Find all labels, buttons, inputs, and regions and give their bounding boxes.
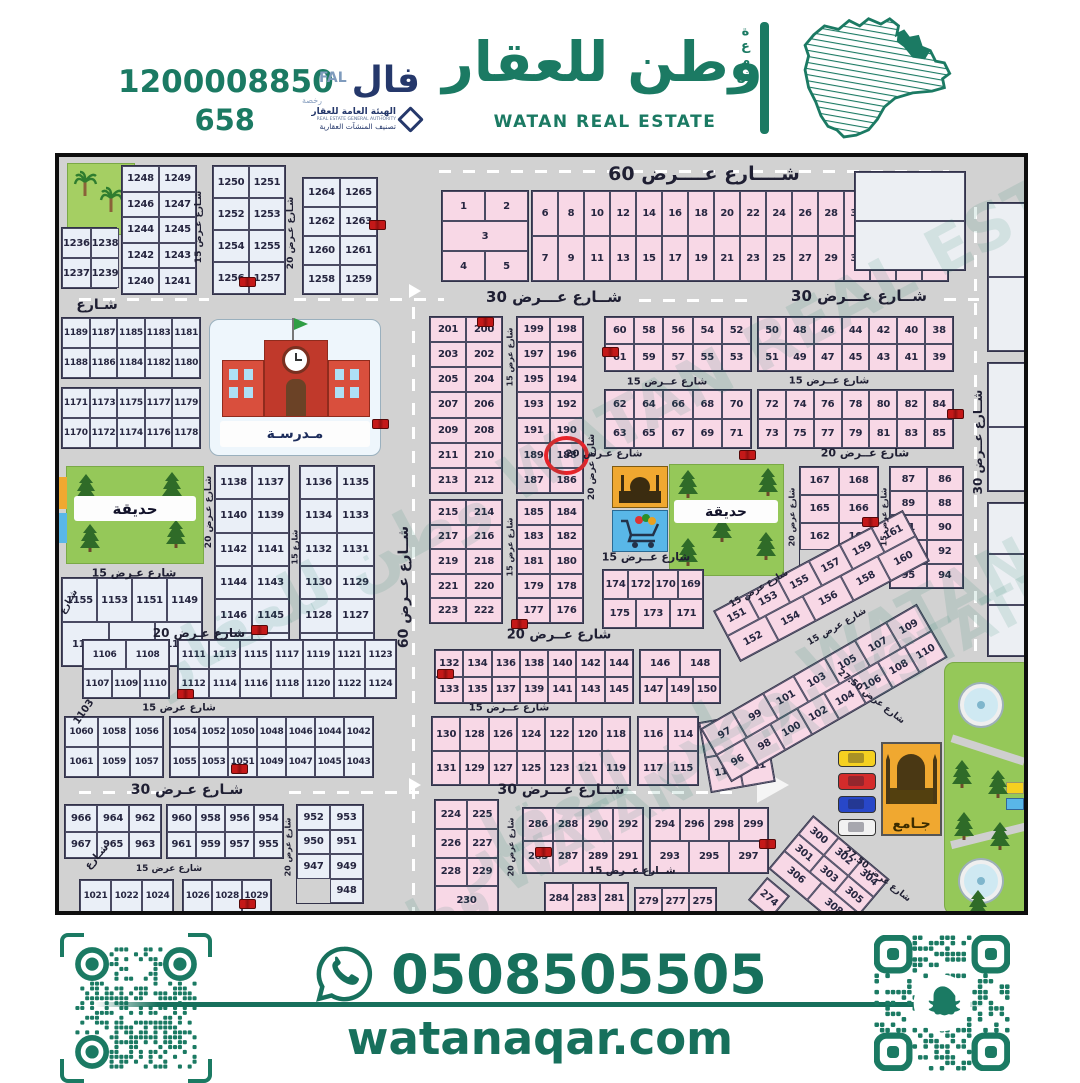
plot-1251: 1251 bbox=[249, 166, 285, 198]
car-marker-icon bbox=[231, 764, 248, 774]
plot-1121: 1121 bbox=[334, 640, 365, 669]
plot-953: 953 bbox=[330, 805, 363, 830]
plot-1028: 1028 bbox=[212, 880, 241, 912]
block-1111: 1111111311151117111911211123111211141116… bbox=[177, 639, 397, 699]
street-label: شــارع عــرض 30 bbox=[971, 390, 985, 495]
plot-966: 966 bbox=[65, 805, 97, 832]
plot-126: 126 bbox=[489, 717, 517, 751]
plot-1113: 1113 bbox=[209, 640, 240, 669]
plot-139: 139 bbox=[520, 677, 548, 704]
block-132-145: 1321341361381401421441331351371391411431… bbox=[434, 649, 634, 704]
block-1236: 1236123812371239 bbox=[61, 227, 117, 289]
plot-1140: 1140 bbox=[215, 499, 252, 532]
plot-1260: 1260 bbox=[303, 236, 340, 265]
car-marker-icon bbox=[511, 619, 528, 629]
plot-73: 73 bbox=[758, 419, 786, 448]
plot-212: 212 bbox=[466, 468, 502, 493]
plot-124: 124 bbox=[517, 717, 545, 751]
plot-288: 288 bbox=[553, 808, 583, 841]
plot-1143: 1143 bbox=[252, 566, 289, 599]
plot-1252: 1252 bbox=[213, 198, 249, 230]
plot-1144: 1144 bbox=[215, 566, 252, 599]
plot-201: 201 bbox=[430, 317, 466, 342]
plot-214: 214 bbox=[466, 500, 502, 525]
plot-11: 11 bbox=[584, 236, 610, 281]
street-arrow-icon bbox=[409, 284, 421, 298]
plot-286: 286 bbox=[523, 808, 553, 841]
plot-49: 49 bbox=[786, 344, 814, 371]
plot-1117: 1117 bbox=[271, 640, 302, 669]
plot-44: 44 bbox=[842, 317, 870, 344]
school-clock-icon bbox=[282, 346, 310, 374]
plot-1259: 1259 bbox=[340, 265, 377, 294]
block-72-85: 7274767880828473757779818385 bbox=[757, 389, 954, 449]
plot-53: 53 bbox=[722, 344, 751, 371]
plot-192: 192 bbox=[550, 392, 583, 417]
plot-130: 130 bbox=[432, 717, 460, 751]
plot-295: 295 bbox=[689, 841, 728, 874]
fal-classification: تصنيف المنشآت العقارية bbox=[311, 122, 396, 131]
block-200-213: 2012002032022052042072062092082112102132… bbox=[429, 316, 503, 494]
plot-45: 45 bbox=[842, 344, 870, 371]
fal-arabic: فال bbox=[352, 62, 420, 100]
fal-license-logo: FAL فال رخصة الهيئة العامة للعقار REAL E… bbox=[302, 62, 420, 131]
car-marker-icon bbox=[239, 277, 256, 287]
car-marker-icon bbox=[535, 847, 552, 857]
street-label: شارع عــرض 20 bbox=[821, 447, 909, 460]
plot-119: 119 bbox=[602, 751, 630, 785]
plot-1061: 1061 bbox=[65, 747, 98, 777]
block-1106: 11061108110711091110 bbox=[82, 639, 170, 699]
plot-143: 143 bbox=[576, 677, 604, 704]
plot-958: 958 bbox=[196, 805, 225, 832]
plot-1180: 1180 bbox=[172, 348, 200, 378]
street-label: شارع عـرض 15 bbox=[92, 567, 177, 580]
plot-1045: 1045 bbox=[315, 747, 344, 777]
car-marker-icon bbox=[239, 899, 256, 909]
plot-1239: 1239 bbox=[91, 258, 120, 288]
brand-name-arabic: وطن للعقار bbox=[430, 30, 775, 94]
plot-29: 29 bbox=[818, 236, 844, 281]
plot-1238: 1238 bbox=[91, 228, 120, 258]
plot-50: 50 bbox=[758, 317, 786, 344]
plot-131: 131 bbox=[432, 751, 460, 785]
plot-68: 68 bbox=[693, 390, 722, 419]
plot-279: 279 bbox=[635, 888, 662, 914]
car-marker-icon bbox=[251, 625, 268, 635]
street-arrow-icon bbox=[409, 778, 421, 792]
plot-148: 148 bbox=[680, 650, 720, 677]
car-marker-icon bbox=[759, 839, 776, 849]
plot-40: 40 bbox=[897, 317, 925, 344]
street-label: شـارع عـرض 20 bbox=[286, 197, 296, 269]
plot-1115: 1115 bbox=[240, 640, 271, 669]
plot-1255: 1255 bbox=[249, 230, 285, 262]
plot-1057: 1057 bbox=[130, 747, 163, 777]
plot-48: 48 bbox=[786, 317, 814, 344]
plot-57: 57 bbox=[663, 344, 692, 371]
street-label: شارع عــرض 15 bbox=[469, 703, 549, 714]
plot-39: 39 bbox=[925, 344, 953, 371]
plot-67: 67 bbox=[663, 419, 692, 448]
qr-code-snapchat[interactable] bbox=[866, 930, 1018, 1080]
plot-949: 949 bbox=[330, 854, 363, 879]
plot-1153: 1153 bbox=[97, 578, 132, 622]
plot-204: 204 bbox=[466, 367, 502, 392]
mosque-landmark: جـامع bbox=[881, 742, 942, 836]
block-1021: 102110221024 bbox=[79, 879, 174, 913]
plot-cell bbox=[988, 503, 1028, 554]
street-label: شــارع عــرض 60 bbox=[396, 526, 412, 648]
plot-178: 178 bbox=[550, 574, 583, 599]
plot-1130: 1130 bbox=[300, 566, 337, 599]
school-landmark: مـدرسـة bbox=[209, 319, 379, 454]
car-marker-icon bbox=[602, 347, 619, 357]
plot-196: 196 bbox=[550, 342, 583, 367]
fal-seal-icon bbox=[397, 106, 424, 133]
block-275-279: 279277275 bbox=[634, 887, 717, 915]
street-lane-dashes bbox=[294, 298, 444, 301]
plot-1049: 1049 bbox=[257, 747, 286, 777]
block-1180: 1189118711851183118111881186118411821180 bbox=[61, 317, 201, 379]
edge-plots-c bbox=[987, 362, 1028, 492]
plot-1187: 1187 bbox=[90, 318, 118, 348]
plot-203: 203 bbox=[430, 342, 466, 367]
plot-1022: 1022 bbox=[111, 880, 142, 912]
plot-1181: 1181 bbox=[172, 318, 200, 348]
plot-144: 144 bbox=[605, 650, 633, 677]
plot-1241: 1241 bbox=[159, 268, 196, 294]
plot-1142: 1142 bbox=[215, 533, 252, 566]
block-954: 960958956954961959957955 bbox=[166, 804, 284, 859]
plot-118: 118 bbox=[602, 717, 630, 751]
plot-1135: 1135 bbox=[337, 466, 374, 499]
plot-228: 228 bbox=[435, 858, 467, 887]
saudi-map-icon bbox=[780, 10, 1010, 144]
plot-135: 135 bbox=[463, 677, 491, 704]
plot-1026: 1026 bbox=[183, 880, 212, 912]
plot-18: 18 bbox=[688, 191, 714, 236]
plot-1111: 1111 bbox=[178, 640, 209, 669]
plot-274: 274 bbox=[749, 878, 788, 915]
plot-294: 294 bbox=[650, 808, 680, 841]
plot-1247: 1247 bbox=[159, 192, 196, 218]
plot-147: 147 bbox=[640, 677, 667, 704]
plot-64: 64 bbox=[634, 390, 663, 419]
plot-281: 281 bbox=[600, 883, 628, 913]
plot-1131: 1131 bbox=[337, 533, 374, 566]
school-flag-icon bbox=[292, 318, 294, 340]
plot-86: 86 bbox=[927, 467, 964, 491]
edge-plots-d bbox=[987, 502, 1028, 657]
plot-292: 292 bbox=[613, 808, 643, 841]
plot-1265: 1265 bbox=[340, 178, 377, 207]
plot-184: 184 bbox=[550, 500, 583, 525]
plot-74: 74 bbox=[786, 390, 814, 419]
plot-90: 90 bbox=[927, 515, 964, 539]
plot-cell bbox=[988, 363, 1028, 427]
plot-1043: 1043 bbox=[344, 747, 373, 777]
plot-1258: 1258 bbox=[303, 265, 340, 294]
plot-197: 197 bbox=[517, 342, 550, 367]
plot-4: 4 bbox=[442, 251, 485, 281]
plot-133: 133 bbox=[435, 677, 463, 704]
block-214-223: 215214217216219218221220223222 bbox=[429, 499, 503, 624]
plot-211: 211 bbox=[430, 443, 466, 468]
plot-298: 298 bbox=[709, 808, 739, 841]
plot-1056: 1056 bbox=[130, 717, 163, 747]
plot-194: 194 bbox=[550, 367, 583, 392]
plot-20: 20 bbox=[714, 191, 740, 236]
plot-1048: 1048 bbox=[257, 717, 286, 747]
plot-179: 179 bbox=[517, 574, 550, 599]
street-lane-dashes bbox=[289, 791, 419, 794]
plot-1262: 1262 bbox=[303, 207, 340, 236]
street-label: شارع عـرض 20 bbox=[153, 626, 245, 640]
plot-220: 220 bbox=[466, 574, 502, 599]
street-label: شارع عرض 15 bbox=[506, 328, 515, 387]
block-186-199: 1991981971961951941931921911901891881871… bbox=[516, 316, 584, 494]
plot-77: 77 bbox=[814, 419, 842, 448]
plot-1054: 1054 bbox=[170, 717, 199, 747]
plot-54: 54 bbox=[693, 317, 722, 344]
parked-car-icon bbox=[838, 796, 876, 813]
plot-1249: 1249 bbox=[159, 166, 196, 192]
car-marker-icon bbox=[437, 669, 454, 679]
block-962: 966964962967965963 bbox=[64, 804, 162, 859]
plot-123: 123 bbox=[545, 751, 573, 785]
plot-1052: 1052 bbox=[199, 717, 228, 747]
block-1170: 1171117311751177117911701172117411761178 bbox=[61, 387, 201, 449]
plot-1123: 1123 bbox=[365, 640, 396, 669]
plot-1137: 1137 bbox=[252, 466, 289, 499]
plot-275: 275 bbox=[689, 888, 716, 914]
plot-75: 75 bbox=[786, 419, 814, 448]
plot-1184: 1184 bbox=[117, 348, 145, 378]
plot-1185: 1185 bbox=[117, 318, 145, 348]
street-lane-dashes bbox=[412, 307, 415, 915]
plot-1242: 1242 bbox=[122, 243, 159, 269]
block-114-117: 116114117115 bbox=[637, 716, 699, 786]
street-label: شارع عرض 20 bbox=[284, 818, 293, 877]
plot-221: 221 bbox=[430, 574, 466, 599]
plot-1133: 1133 bbox=[337, 499, 374, 532]
plot-947: 947 bbox=[297, 854, 330, 879]
plot-175: 175 bbox=[603, 599, 636, 628]
plot-1122: 1122 bbox=[334, 669, 365, 698]
park-label: حديقة bbox=[674, 500, 778, 523]
parked-car-icon bbox=[838, 819, 876, 836]
plot-219: 219 bbox=[430, 549, 466, 574]
plot-1118: 1118 bbox=[271, 669, 302, 698]
edge-plots-a bbox=[854, 171, 966, 271]
plot-cell bbox=[855, 172, 965, 221]
plot-21: 21 bbox=[714, 236, 740, 281]
plot-959: 959 bbox=[196, 832, 225, 859]
street-label: شارع عـرض 20 bbox=[566, 449, 643, 460]
street-label: شــارع عـــرض 30 bbox=[498, 782, 625, 798]
plot-195: 195 bbox=[517, 367, 550, 392]
plot-1109: 1109 bbox=[112, 669, 141, 698]
plot-14: 14 bbox=[636, 191, 662, 236]
plot-205: 205 bbox=[430, 367, 466, 392]
car-marker-icon bbox=[177, 689, 194, 699]
plot-cell bbox=[855, 221, 965, 270]
plot-171: 171 bbox=[670, 599, 703, 628]
header-phone-sub[interactable]: 658 bbox=[118, 103, 255, 137]
footer-website[interactable]: watanaqar.com bbox=[240, 1012, 840, 1065]
plot-950: 950 bbox=[297, 830, 330, 855]
plot-198: 198 bbox=[550, 317, 583, 342]
plot-79: 79 bbox=[842, 419, 870, 448]
plot-1: 1 bbox=[442, 191, 485, 221]
plot-957: 957 bbox=[225, 832, 254, 859]
edge-plots-b bbox=[987, 202, 1028, 352]
plot-114: 114 bbox=[668, 717, 698, 751]
block-224-230: 224225226227228229230 bbox=[434, 799, 499, 915]
plot-2: 2 bbox=[485, 191, 528, 221]
street-label: شــارع عــرض 15 bbox=[588, 866, 675, 877]
plot-227: 227 bbox=[467, 829, 499, 858]
block-38-51: 5048464442403851494745434139 bbox=[757, 316, 954, 372]
plot-952: 952 bbox=[297, 805, 330, 830]
plot-1182: 1182 bbox=[145, 348, 173, 378]
plot-134: 134 bbox=[463, 650, 491, 677]
plot-1141: 1141 bbox=[252, 533, 289, 566]
plot-46: 46 bbox=[814, 317, 842, 344]
plot-80: 80 bbox=[869, 390, 897, 419]
street-label: شارع عرض 15 bbox=[506, 518, 515, 577]
street-label: شارع 15 bbox=[291, 530, 300, 565]
plot-136: 136 bbox=[492, 650, 520, 677]
plot-296: 296 bbox=[680, 808, 710, 841]
plot-948: 948 bbox=[330, 879, 363, 904]
plot-210: 210 bbox=[466, 443, 502, 468]
plot-115: 115 bbox=[668, 751, 698, 785]
plot-167: 167 bbox=[800, 467, 839, 495]
plot-146: 146 bbox=[640, 650, 680, 677]
block-1250: 12501251125212531254125512561257 bbox=[212, 165, 286, 295]
plot-176: 176 bbox=[550, 598, 583, 623]
plot-1127: 1127 bbox=[337, 599, 374, 632]
plot-1024: 1024 bbox=[142, 880, 173, 912]
plot-1129: 1129 bbox=[337, 566, 374, 599]
street-label: شارع عرض 20 bbox=[788, 488, 797, 547]
plot-map: وطن للعقار WATAN REAL ESTATEوطن للعقار W… bbox=[55, 153, 1028, 915]
brand-name-english: WATAN REAL ESTATE bbox=[455, 112, 755, 132]
plot-209: 209 bbox=[430, 418, 466, 443]
plot-1042: 1042 bbox=[344, 717, 373, 747]
plot-222: 222 bbox=[466, 598, 502, 623]
plot-24: 24 bbox=[766, 191, 792, 236]
footer-divider bbox=[95, 1002, 985, 1007]
plot-1253: 1253 bbox=[249, 198, 285, 230]
plot-165: 165 bbox=[800, 495, 839, 523]
block-146-150: 146148147149150 bbox=[639, 649, 721, 704]
plot-1240: 1240 bbox=[122, 268, 159, 294]
plot-1186: 1186 bbox=[90, 348, 118, 378]
plot-215: 215 bbox=[430, 500, 466, 525]
plot-956: 956 bbox=[225, 805, 254, 832]
street-label: شارع عرض 15 bbox=[880, 488, 889, 547]
street-lane-dashes bbox=[639, 299, 759, 302]
car-marker-icon bbox=[372, 419, 389, 429]
plot-217: 217 bbox=[430, 525, 466, 550]
header-phone-main[interactable]: 1200008850 bbox=[118, 64, 300, 100]
plot-141: 141 bbox=[548, 677, 576, 704]
plot-1177: 1177 bbox=[145, 388, 173, 418]
plot-1050: 1050 bbox=[228, 717, 257, 747]
brand-divider-bar bbox=[760, 22, 769, 134]
plot-89: 89 bbox=[890, 491, 927, 515]
plot-83: 83 bbox=[897, 419, 925, 448]
plot-1171: 1171 bbox=[62, 388, 90, 418]
plot-207: 207 bbox=[430, 392, 466, 417]
plot-183: 183 bbox=[517, 525, 550, 550]
plot-1176: 1176 bbox=[145, 418, 173, 448]
street-label: شارع عــرض 20 bbox=[507, 628, 612, 643]
plot-1179: 1179 bbox=[172, 388, 200, 418]
plot-65: 65 bbox=[634, 419, 663, 448]
plot-1116: 1116 bbox=[240, 669, 271, 698]
plot-182: 182 bbox=[550, 525, 583, 550]
plot-223: 223 bbox=[430, 598, 466, 623]
plot-961: 961 bbox=[167, 832, 196, 859]
plot-1243: 1243 bbox=[159, 243, 196, 269]
plot-3: 3 bbox=[442, 221, 528, 251]
block-118-131: 1301281261241221201181311291271251231211… bbox=[431, 716, 631, 786]
plot-128: 128 bbox=[460, 717, 488, 751]
plot-38: 38 bbox=[925, 317, 953, 344]
plot-1175: 1175 bbox=[117, 388, 145, 418]
plot-1120: 1120 bbox=[303, 669, 334, 698]
plot-951: 951 bbox=[330, 830, 363, 855]
plot-63: 63 bbox=[605, 419, 634, 448]
block-285-292: 286288290292285287289291 bbox=[522, 807, 644, 874]
plot-42: 42 bbox=[869, 317, 897, 344]
school-label: مـدرسـة bbox=[220, 421, 370, 447]
plot-78: 78 bbox=[842, 390, 870, 419]
plot-206: 206 bbox=[466, 392, 502, 417]
plot-19: 19 bbox=[688, 236, 714, 281]
plot-191: 191 bbox=[517, 418, 550, 443]
plot-1044: 1044 bbox=[315, 717, 344, 747]
street-label: شـارع عـرض 30 bbox=[131, 782, 244, 798]
plot-168: 168 bbox=[839, 467, 878, 495]
plot-6: 6 bbox=[532, 191, 558, 236]
street-label: شارع عرض 15 bbox=[136, 864, 202, 874]
block-1-5: 12345 bbox=[441, 190, 529, 282]
plot-1189: 1189 bbox=[62, 318, 90, 348]
plot-1058: 1058 bbox=[98, 717, 131, 747]
plot-1236: 1236 bbox=[62, 228, 91, 258]
whatsapp-icon bbox=[313, 943, 375, 1005]
street-label: شارع عرض 20 bbox=[507, 818, 516, 877]
car-marker-icon bbox=[477, 317, 494, 327]
plot-180: 180 bbox=[550, 549, 583, 574]
footer-phone[interactable]: 0508505505 bbox=[391, 943, 767, 1006]
plot-43: 43 bbox=[869, 344, 897, 371]
plot-1138: 1138 bbox=[215, 466, 252, 499]
plot-137: 137 bbox=[492, 677, 520, 704]
plot-1254: 1254 bbox=[213, 230, 249, 262]
plot-1248: 1248 bbox=[122, 166, 159, 192]
playground-icon bbox=[1006, 798, 1024, 810]
street-label: شــارع عـــرض 30 bbox=[791, 287, 927, 305]
plot-122: 122 bbox=[545, 717, 573, 751]
plot-1245: 1245 bbox=[159, 217, 196, 243]
plot-963: 963 bbox=[129, 832, 161, 859]
